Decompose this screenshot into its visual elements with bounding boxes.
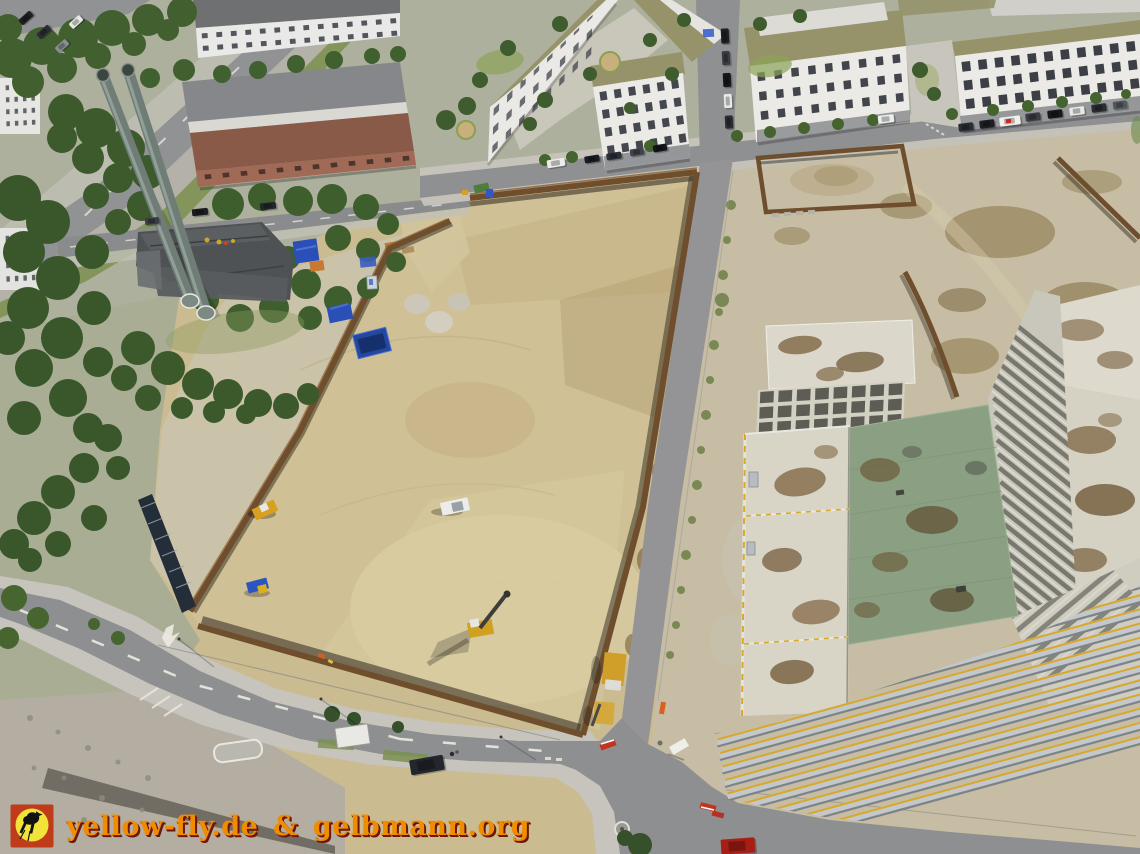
concrete-block-1 bbox=[772, 213, 779, 217]
deck-dirt-5 bbox=[854, 602, 880, 618]
mini-digger-box bbox=[486, 189, 493, 197]
deck-dirt-3 bbox=[872, 552, 908, 572]
dump-truck-shadow bbox=[591, 656, 601, 684]
watermark-text: yellow-fly.de & gelbmann.org bbox=[66, 813, 530, 840]
lower-slab-dirt-1 bbox=[1064, 426, 1116, 454]
yellow-fly-logo-icon bbox=[10, 804, 54, 848]
bike-mark-2 bbox=[556, 758, 562, 761]
site-hut bbox=[335, 724, 370, 748]
concrete-block-3 bbox=[796, 211, 803, 215]
deck-grey-2 bbox=[902, 446, 922, 458]
chimney-base-2 bbox=[197, 306, 215, 320]
pedestrian-1 bbox=[450, 752, 454, 756]
chimney-base-1 bbox=[181, 294, 199, 308]
site-puddle-8 bbox=[774, 227, 810, 245]
porta-door bbox=[369, 279, 373, 285]
deck-dirt-1 bbox=[860, 458, 900, 482]
plant-flat-west bbox=[136, 250, 162, 290]
playground-1 bbox=[600, 52, 620, 72]
lower-slab-dirt-2 bbox=[1075, 484, 1135, 516]
deck-dirt-2 bbox=[906, 506, 958, 534]
deck-grey-1 bbox=[965, 461, 987, 475]
blue-pavilion bbox=[293, 238, 320, 263]
pit-mound-shade bbox=[405, 382, 535, 458]
gravel-pile-2 bbox=[425, 311, 453, 333]
excavator-bucket bbox=[504, 591, 511, 598]
playground-2 bbox=[457, 121, 475, 139]
scene-canvas bbox=[0, 0, 1140, 854]
pen-interior-shade bbox=[790, 164, 874, 196]
shell-slab-roof bbox=[766, 320, 915, 389]
white-deck-dirt-5 bbox=[814, 445, 838, 459]
scaffold-tower-1 bbox=[749, 472, 758, 487]
dump-truck-cab bbox=[605, 679, 622, 691]
pedestrian-2 bbox=[455, 750, 459, 754]
concrete-block-4 bbox=[808, 210, 815, 214]
aerial-construction-photo: yellow-fly.de & gelbmann.org bbox=[0, 0, 1140, 854]
gravel-pile-3 bbox=[448, 293, 470, 311]
plant-roof-vent-red bbox=[224, 241, 228, 245]
scaffold-tower-2 bbox=[747, 542, 755, 555]
blue-tarp-small bbox=[360, 256, 377, 268]
van-red-logo bbox=[1006, 119, 1011, 124]
orange-stand bbox=[309, 260, 324, 272]
concrete-block-2 bbox=[784, 212, 791, 216]
site-puddle-7 bbox=[938, 288, 986, 312]
chimney-top-2 bbox=[122, 64, 135, 77]
excavator-cab bbox=[469, 618, 479, 627]
lower-slab-dirt-5 bbox=[1098, 413, 1122, 427]
manhole bbox=[658, 741, 663, 746]
upper-slab-dirt-2 bbox=[1097, 351, 1133, 369]
blue-canopy bbox=[703, 29, 714, 38]
chimney-top-1 bbox=[97, 69, 110, 82]
mini-digger-bucket bbox=[462, 190, 468, 195]
upper-slab-dirt-1 bbox=[1056, 319, 1104, 341]
bike-mark-1 bbox=[545, 757, 551, 760]
watermark: yellow-fly.de & gelbmann.org bbox=[10, 804, 530, 848]
gravel-pile-1 bbox=[404, 294, 430, 314]
deck-dirt-4 bbox=[930, 588, 974, 612]
